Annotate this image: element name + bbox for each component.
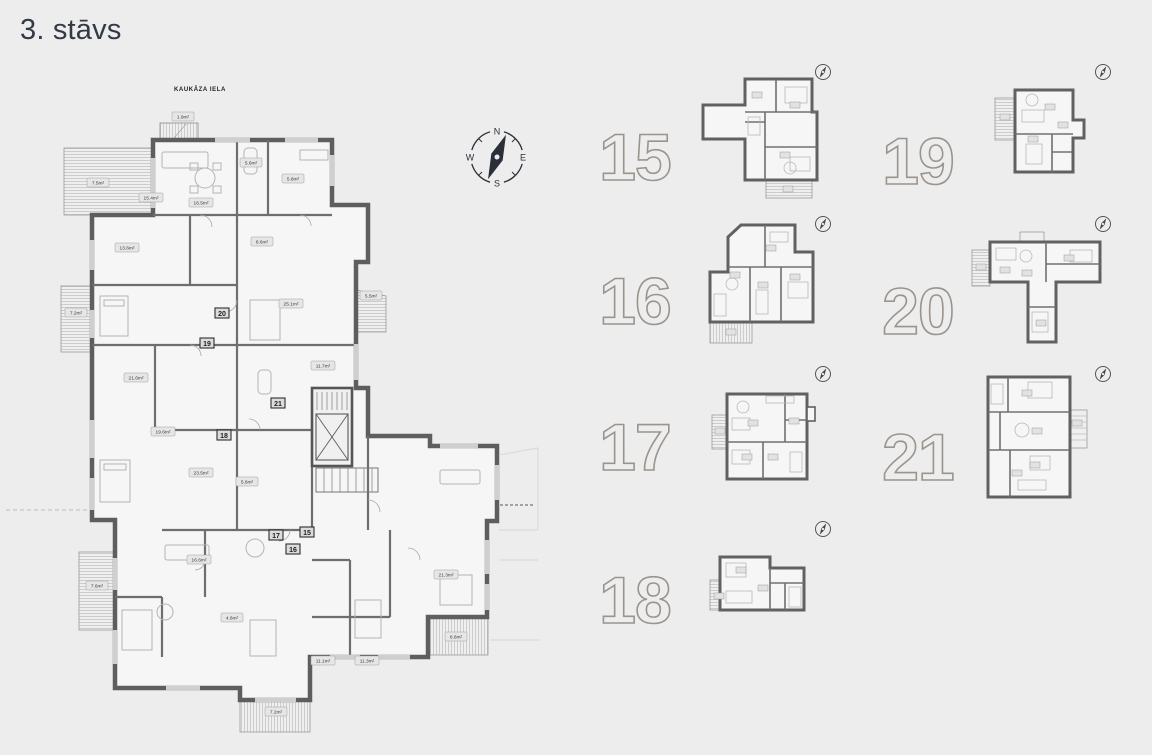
unit-plan-19 bbox=[970, 62, 1152, 212]
unit-number-17: 17 bbox=[580, 362, 690, 512]
unit-compass-16 bbox=[813, 214, 833, 234]
unit-tile-15[interactable]: 15 bbox=[580, 62, 860, 212]
compass-north: N bbox=[494, 127, 501, 137]
svg-text:5.5m²: 5.5m² bbox=[365, 294, 378, 300]
svg-text:16: 16 bbox=[289, 547, 297, 554]
compass-east: E bbox=[520, 153, 526, 163]
unit-compass-21 bbox=[1093, 364, 1113, 384]
unit-compass-18 bbox=[813, 519, 833, 539]
svg-text:21.3m²: 21.3m² bbox=[439, 573, 454, 579]
svg-text:7.5m²: 7.5m² bbox=[92, 181, 105, 187]
svg-text:11.1m²: 11.1m² bbox=[316, 659, 331, 665]
unit-plan-15 bbox=[690, 62, 860, 212]
svg-text:19: 19 bbox=[882, 124, 953, 198]
unit-number-16: 16 bbox=[580, 212, 690, 362]
unit-plan-20 bbox=[970, 212, 1152, 362]
svg-text:8.6m²: 8.6m² bbox=[256, 240, 269, 246]
unit-tile-16[interactable]: 16 bbox=[580, 212, 860, 362]
street-label: KAUKĀZA IELA bbox=[174, 86, 226, 93]
svg-text:18: 18 bbox=[220, 433, 228, 440]
unit-plan-18 bbox=[690, 505, 860, 655]
unit-number-21: 21 bbox=[860, 362, 970, 512]
svg-text:1.9m²: 1.9m² bbox=[177, 115, 190, 121]
svg-text:7.2m²: 7.2m² bbox=[70, 311, 83, 317]
svg-text:11.7m²: 11.7m² bbox=[316, 364, 331, 370]
svg-text:19.6m²: 19.6m² bbox=[156, 430, 171, 436]
svg-text:20: 20 bbox=[218, 311, 226, 318]
svg-text:18: 18 bbox=[599, 563, 670, 637]
main-floor-plan: KAUKĀZA IELA bbox=[0, 0, 560, 755]
unit-plan-16 bbox=[690, 212, 860, 362]
unit-number-15: 15 bbox=[580, 62, 690, 212]
unit-tile-19[interactable]: 19 bbox=[860, 62, 1152, 212]
svg-text:5.6m²: 5.6m² bbox=[245, 161, 258, 167]
unit-compass-17 bbox=[813, 364, 833, 384]
compass-rose: N E S W bbox=[464, 124, 530, 190]
svg-text:21: 21 bbox=[274, 401, 282, 408]
svg-text:19: 19 bbox=[203, 341, 211, 348]
svg-text:5.6m²: 5.6m² bbox=[241, 480, 254, 486]
svg-text:15: 15 bbox=[599, 120, 670, 194]
svg-text:4.6m²: 4.6m² bbox=[226, 616, 239, 622]
svg-text:7.2m²: 7.2m² bbox=[270, 710, 283, 716]
unit-plan-21 bbox=[970, 362, 1152, 512]
unit-number-20: 20 bbox=[860, 212, 970, 362]
svg-text:15.4m²: 15.4m² bbox=[144, 196, 159, 202]
unit-number-18: 18 bbox=[580, 505, 690, 655]
unit-plan-17 bbox=[690, 362, 860, 512]
unit-tile-18[interactable]: 18 bbox=[580, 505, 860, 655]
svg-text:20: 20 bbox=[882, 274, 953, 348]
svg-text:7.6m²: 7.6m² bbox=[91, 584, 104, 590]
floorplan-page: { "page": { "title": "3. stāvs" }, "colo… bbox=[0, 0, 1152, 755]
svg-text:13.6m²: 13.6m² bbox=[120, 246, 135, 252]
unit-compass-19 bbox=[1093, 62, 1113, 82]
compass-west: W bbox=[466, 153, 475, 163]
unit-compass-15 bbox=[813, 62, 833, 82]
svg-text:17: 17 bbox=[272, 533, 280, 540]
compass-south: S bbox=[494, 179, 500, 189]
unit-tile-17[interactable]: 17 bbox=[580, 362, 860, 512]
svg-text:8.6m²: 8.6m² bbox=[450, 635, 463, 641]
svg-text:16.6m²: 16.6m² bbox=[192, 558, 207, 564]
unit-number-19: 19 bbox=[860, 62, 970, 212]
svg-text:25.1m²: 25.1m² bbox=[284, 302, 299, 308]
svg-text:15: 15 bbox=[303, 530, 311, 537]
svg-text:21.6m²: 21.6m² bbox=[129, 376, 144, 382]
svg-text:16: 16 bbox=[599, 264, 670, 338]
svg-text:17: 17 bbox=[599, 410, 670, 484]
svg-text:21: 21 bbox=[882, 420, 953, 494]
svg-text:11.3m²: 11.3m² bbox=[360, 659, 375, 665]
unit-tile-21[interactable]: 21 bbox=[860, 362, 1152, 512]
svg-text:23.5m²: 23.5m² bbox=[194, 471, 209, 477]
svg-text:5.8m²: 5.8m² bbox=[287, 177, 300, 183]
unit-compass-20 bbox=[1093, 214, 1113, 234]
unit-tile-20[interactable]: 20 bbox=[860, 212, 1152, 362]
svg-text:16.5m²: 16.5m² bbox=[194, 201, 209, 207]
building-outline bbox=[92, 140, 497, 700]
